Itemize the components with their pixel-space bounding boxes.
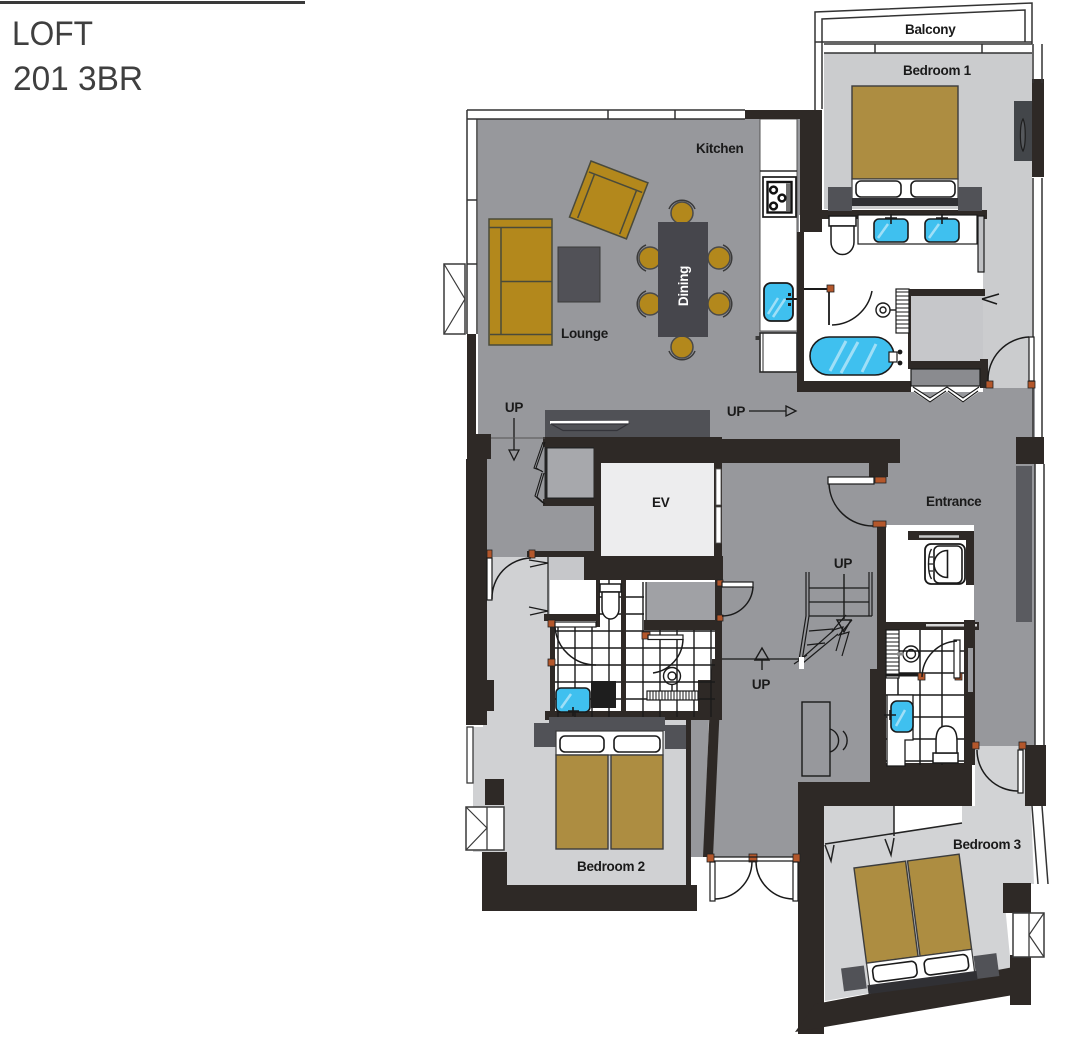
svg-text:201 3BR: 201 3BR — [13, 60, 143, 98]
svg-text:LOFT: LOFT — [12, 15, 93, 53]
svg-text:UP: UP — [752, 677, 770, 692]
svg-text:Bedroom 3: Bedroom 3 — [953, 837, 1022, 852]
svg-text:Bedroom 1: Bedroom 1 — [903, 63, 972, 78]
svg-text:EV: EV — [652, 495, 670, 510]
svg-text:Entrance: Entrance — [926, 494, 982, 509]
svg-text:Dining: Dining — [676, 266, 691, 306]
svg-text:Balcony: Balcony — [905, 22, 956, 37]
svg-text:UP: UP — [505, 400, 523, 415]
svg-text:UP: UP — [727, 404, 745, 419]
svg-text:Lounge: Lounge — [561, 326, 609, 341]
svg-text:Bedroom 2: Bedroom 2 — [577, 859, 645, 874]
svg-text:UP: UP — [834, 556, 852, 571]
svg-text:Kitchen: Kitchen — [696, 141, 743, 156]
